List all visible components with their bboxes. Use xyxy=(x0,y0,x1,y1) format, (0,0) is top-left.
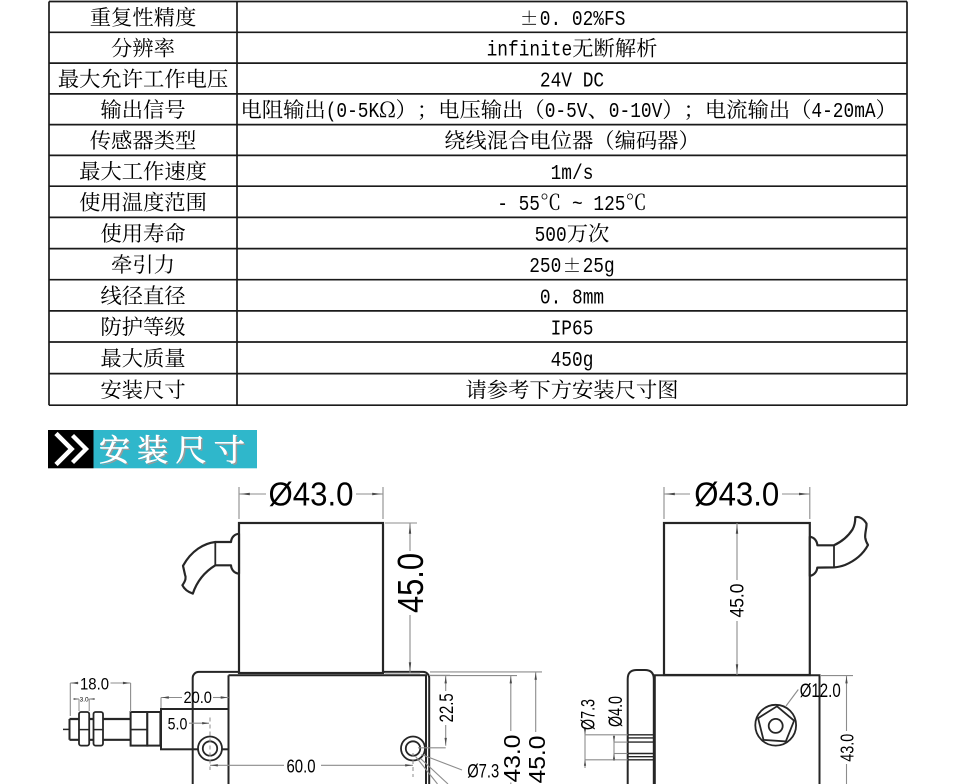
svg-text:18.0: 18.0 xyxy=(80,675,109,694)
svg-text:~ 125: ~ 125 xyxy=(561,193,625,217)
svg-text:3.0: 3.0 xyxy=(80,696,89,703)
svg-text:43.0: 43.0 xyxy=(499,735,525,783)
svg-text:IP65: IP65 xyxy=(551,317,594,341)
svg-text:500: 500 xyxy=(535,224,567,248)
svg-text:20.0: 20.0 xyxy=(183,688,212,707)
svg-text:25g: 25g xyxy=(583,255,615,279)
svg-text:4-20mA: 4-20mA xyxy=(811,100,875,124)
svg-text:Ø7.3: Ø7.3 xyxy=(467,761,499,782)
svg-text:45.0: 45.0 xyxy=(390,553,431,613)
svg-text:5.0: 5.0 xyxy=(168,714,188,733)
svg-text:43.0: 43.0 xyxy=(838,734,858,762)
svg-text:45.0: 45.0 xyxy=(524,736,550,784)
svg-text:infinite: infinite xyxy=(487,39,573,63)
svg-text:450g: 450g xyxy=(551,349,594,373)
svg-text:Ø12.0: Ø12.0 xyxy=(800,681,841,702)
svg-text:1m/s: 1m/s xyxy=(551,162,594,186)
svg-text:250: 250 xyxy=(529,255,561,279)
svg-text:60.0: 60.0 xyxy=(287,757,316,777)
svg-text:22.5: 22.5 xyxy=(437,693,458,722)
svg-text:0-10V: 0-10V xyxy=(609,100,663,124)
svg-text:0. 8mm: 0. 8mm xyxy=(540,286,604,310)
svg-text:24V DC: 24V DC xyxy=(540,70,604,94)
svg-text:Ø7.3: Ø7.3 xyxy=(578,699,599,730)
svg-text:Ø4.0: Ø4.0 xyxy=(606,696,627,727)
svg-text:- 55: - 55 xyxy=(497,193,540,217)
svg-text:Ø43.0: Ø43.0 xyxy=(269,476,354,513)
svg-text:0-5V: 0-5V xyxy=(545,100,588,124)
svg-text:(0-5K: (0-5K xyxy=(326,100,380,124)
svg-text:0. 02%FS: 0. 02%FS xyxy=(540,8,626,32)
svg-text:45.0: 45.0 xyxy=(728,584,749,618)
svg-text:Ø43.0: Ø43.0 xyxy=(694,476,779,513)
